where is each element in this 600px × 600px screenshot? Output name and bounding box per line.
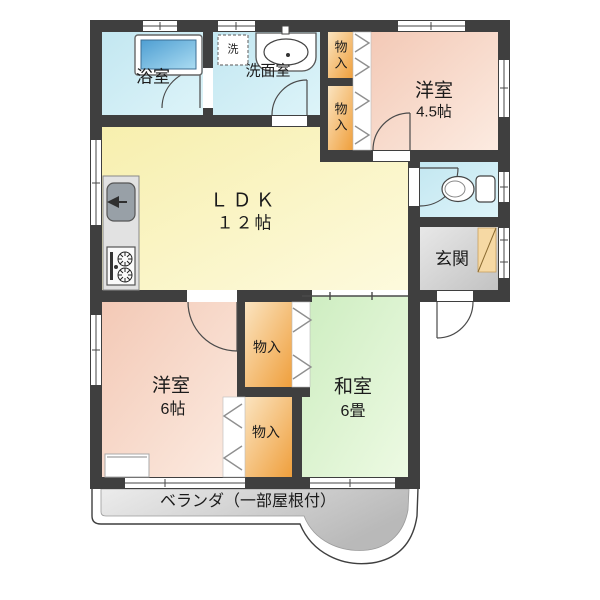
wall-toilet-entrance-divider bbox=[420, 217, 498, 227]
shoe-cabinet-icon bbox=[478, 228, 496, 272]
opening-western6-door bbox=[187, 291, 237, 301]
window-toilet bbox=[499, 172, 509, 202]
counter-icon bbox=[105, 454, 149, 477]
ldk-size: １２帖 bbox=[217, 215, 274, 232]
washroom-label: 洗面室 bbox=[245, 64, 290, 79]
entrance-label: 玄関 bbox=[435, 251, 469, 268]
western-room-6-size: 6帖 bbox=[161, 402, 186, 418]
laundry-label: 洗 bbox=[228, 45, 239, 56]
japanese-room-size: 6畳 bbox=[341, 404, 366, 420]
wall-japanese-right bbox=[408, 290, 420, 489]
japanese-room-name: 和室 bbox=[334, 378, 372, 397]
veranda-label: ベランダ（一部屋根付） bbox=[160, 494, 336, 510]
front-door bbox=[499, 228, 509, 278]
toilet-icon bbox=[442, 176, 495, 202]
western-room-45-size: 4.5帖 bbox=[416, 105, 452, 120]
wall-left bbox=[90, 20, 102, 487]
wall-closet-low-right bbox=[292, 397, 302, 477]
window-ldk-left bbox=[91, 140, 101, 225]
door-entrance-swing bbox=[437, 302, 473, 338]
stove-icon bbox=[107, 247, 135, 285]
ldk-name: ＬＤＫ bbox=[209, 192, 278, 211]
window-western6-left bbox=[91, 315, 101, 385]
window-japanese-bottom bbox=[310, 478, 395, 488]
closet-top-upper-label: 物入 bbox=[334, 40, 347, 72]
window-western6-bottom bbox=[125, 478, 245, 488]
bathroom-label: 浴室 bbox=[136, 69, 170, 86]
wall-closet-mid-left bbox=[237, 290, 245, 387]
wall-closet-top-divider bbox=[328, 78, 353, 86]
wall-closet-top-bottom bbox=[320, 150, 371, 162]
floorplan-drawing bbox=[0, 0, 600, 600]
opening-washroom-door bbox=[272, 116, 307, 126]
opening-entrance-door bbox=[437, 291, 473, 301]
closet-top-door-strip bbox=[353, 32, 371, 150]
wall-wash-closet-divider bbox=[320, 32, 328, 150]
western-room-45-name: 洋室 bbox=[415, 82, 453, 101]
opening-bathroom-door bbox=[203, 68, 213, 108]
window-washroom bbox=[218, 21, 255, 31]
wall-closet-divider-mid bbox=[237, 387, 310, 397]
wall-closet-mid-top bbox=[237, 290, 312, 302]
window-western45-right bbox=[499, 60, 509, 117]
opening-toilet-door bbox=[409, 168, 419, 206]
opening-western45-door bbox=[373, 151, 410, 161]
floorplan: 浴室 洗面室 洗 物入 物入 洋室 4.5帖 ＬＤＫ １２帖 玄関 洋室 6帖 … bbox=[0, 0, 600, 600]
closet-top-lower-label: 物入 bbox=[334, 102, 347, 134]
window-western45-top bbox=[398, 21, 465, 31]
western-room-6-name: 洋室 bbox=[152, 377, 190, 396]
window-bathroom bbox=[143, 21, 177, 31]
wall-western6-top bbox=[102, 290, 187, 302]
closet-low-label: 物入 bbox=[252, 425, 280, 439]
kitchen-icon bbox=[103, 176, 139, 290]
closet-mid-label: 物入 bbox=[253, 340, 281, 354]
